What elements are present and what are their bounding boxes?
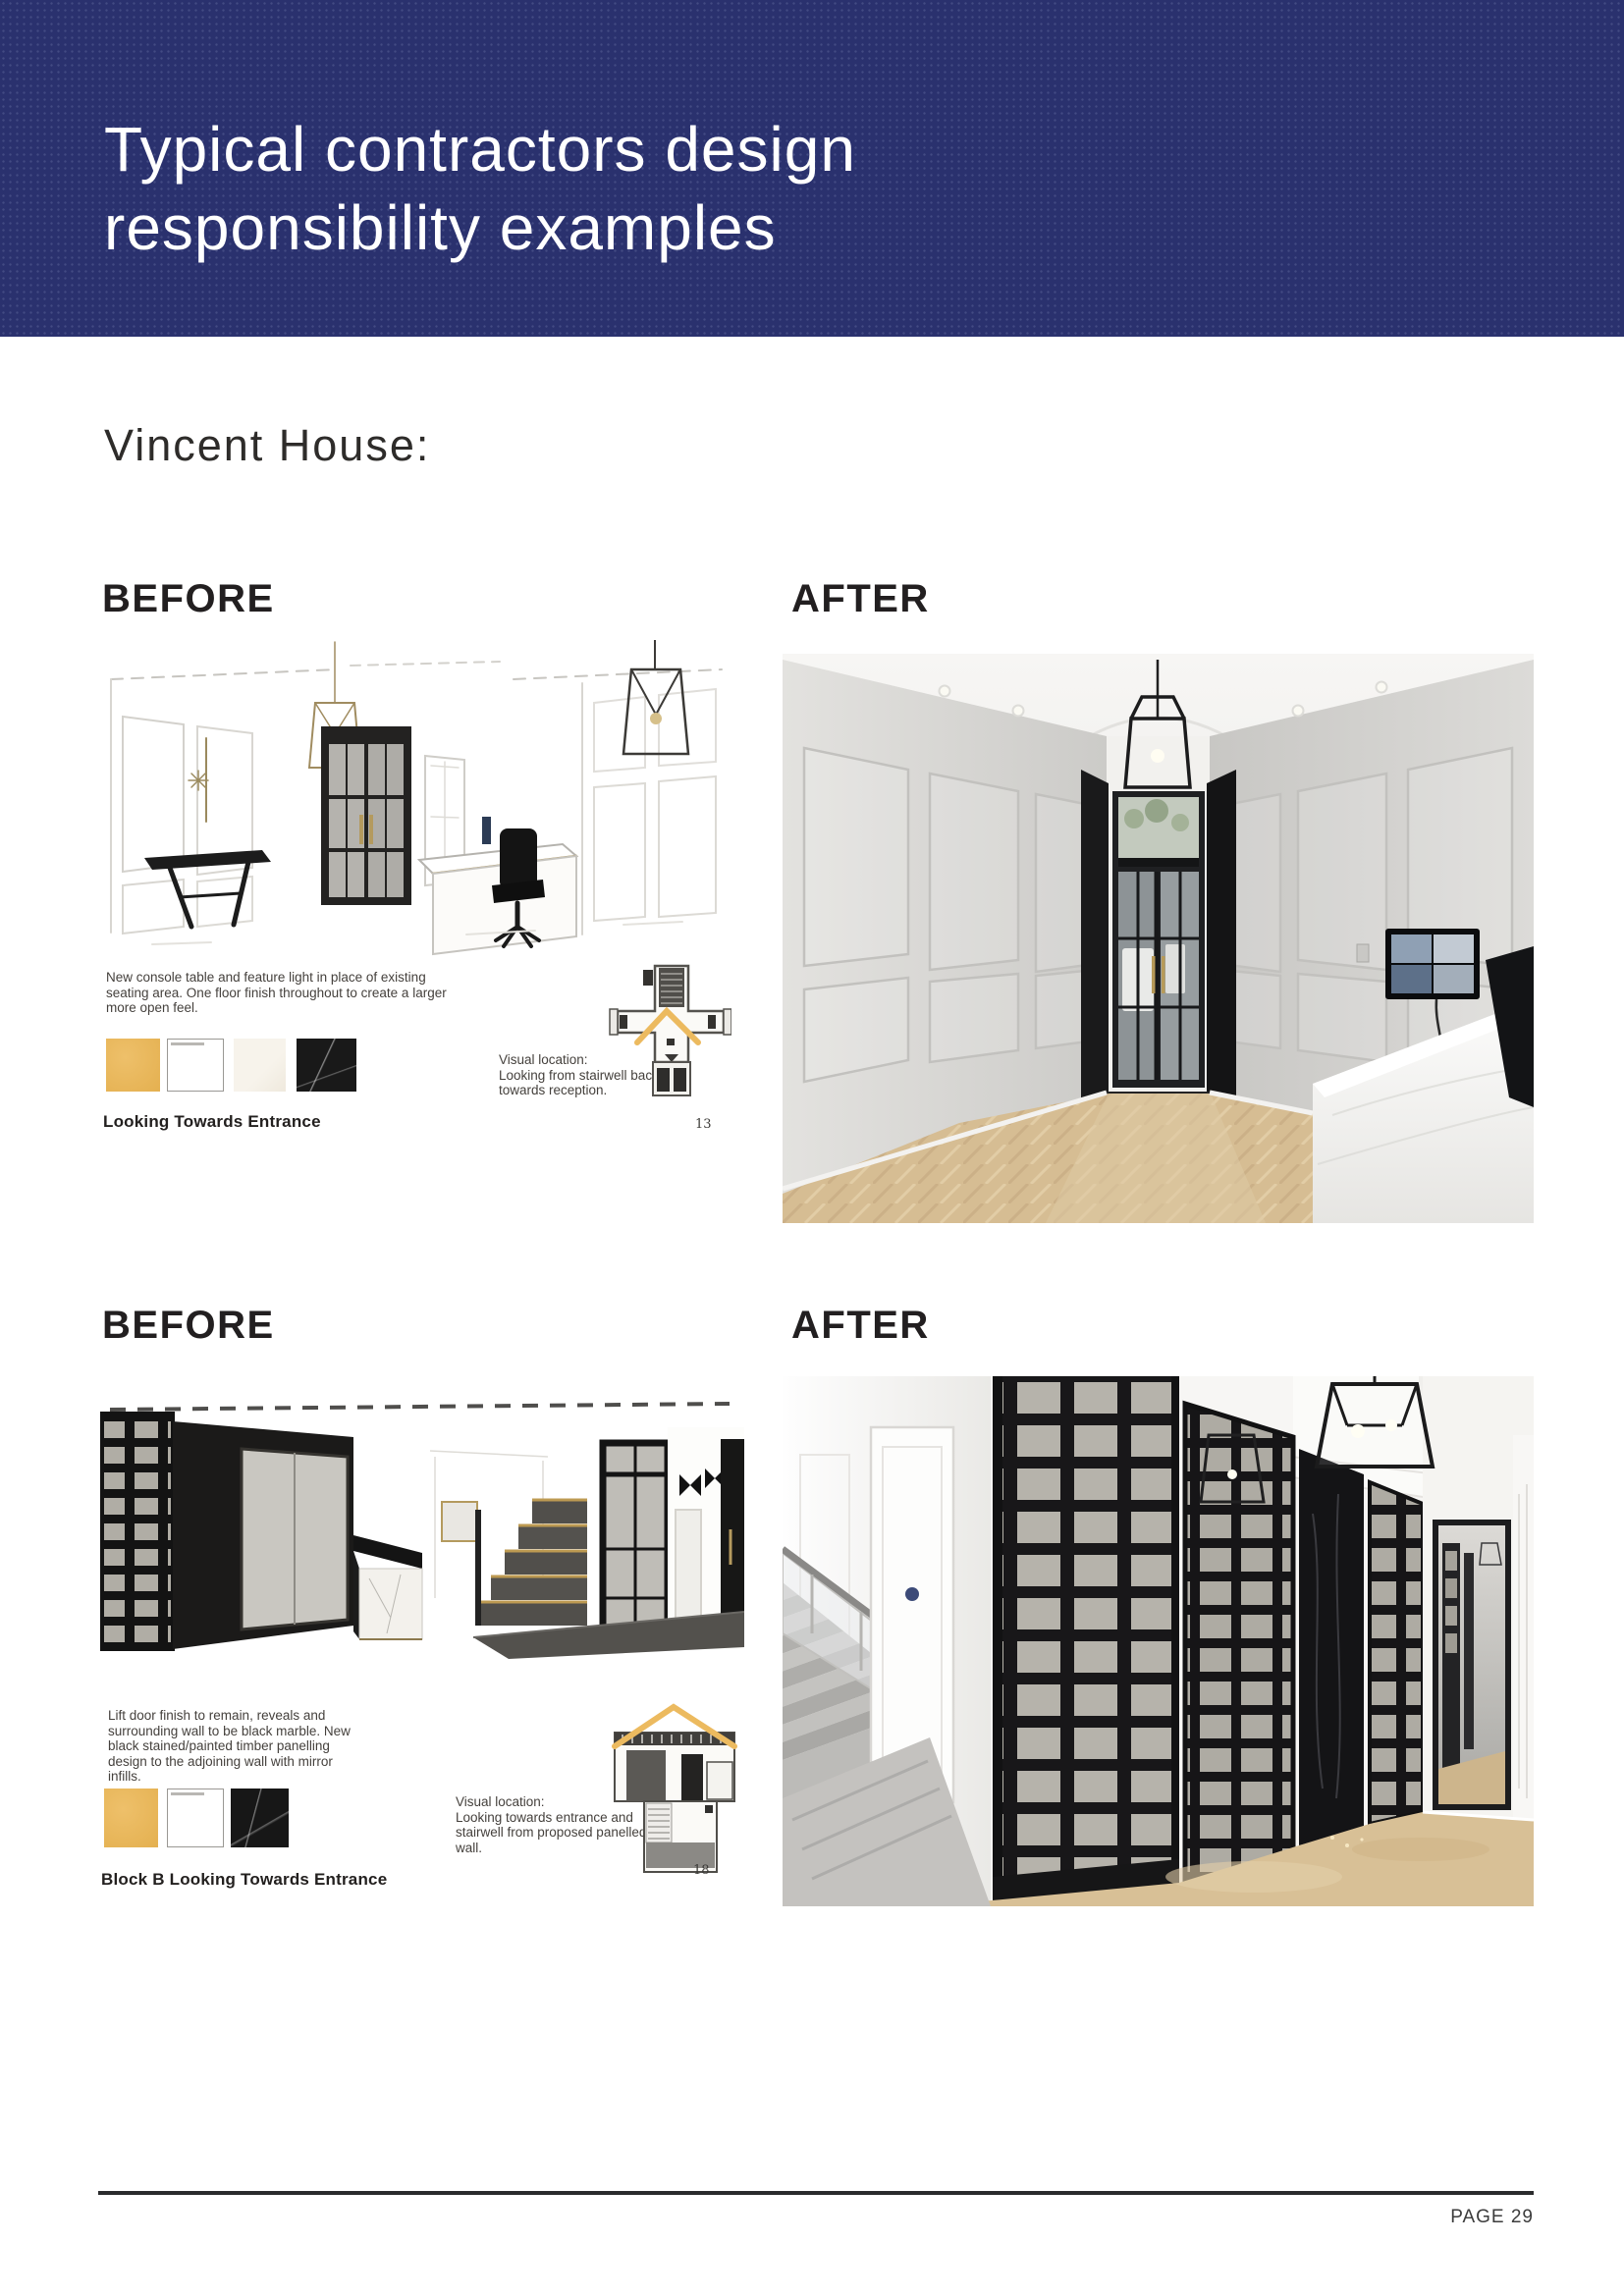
before-sketch-reception (93, 640, 736, 959)
floor-plan-thumbnail-row1 (604, 960, 731, 1102)
source-page-number-row2: 18 (693, 1863, 710, 1878)
view-label-row1: Looking Towards Entrance (103, 1112, 321, 1132)
page-number-label: PAGE 29 (1450, 2207, 1534, 2228)
material-swatch-black-marble (297, 1039, 356, 1092)
visual-location-title: Visual location: (499, 1052, 588, 1067)
before-caption-row1: New console table and feature light in p… (106, 970, 452, 1016)
material-swatch-gold (104, 1789, 158, 1847)
footer-rule (98, 2191, 1534, 2195)
header-banner: Typical contractors design responsibilit… (0, 0, 1624, 337)
material-swatch-black-marble (231, 1789, 289, 1847)
document-page: Typical contractors design responsibilit… (0, 0, 1624, 2296)
material-swatch-white-panel (167, 1789, 224, 1847)
swatch-spec-text (171, 1792, 204, 1795)
page-title-line2: responsibility examples (104, 192, 777, 263)
source-page-number-row1: 13 (695, 1117, 712, 1132)
before-caption-row2: Lift door finish to remain, reveals and … (108, 1708, 352, 1785)
after-photo-reception-hallway (783, 654, 1534, 1223)
page-title: Typical contractors design responsibilit… (104, 110, 856, 267)
after-label-row1: AFTER (791, 577, 930, 621)
section-heading: Vincent House: (104, 420, 430, 471)
material-swatch-gold (106, 1039, 160, 1092)
after-label-row2: AFTER (791, 1304, 930, 1348)
material-swatch-light-marble (234, 1039, 286, 1092)
page-title-line1: Typical contractors design (104, 114, 856, 185)
before-label-row1: BEFORE (102, 577, 275, 621)
before-sketch-lift-lobby (96, 1392, 744, 1662)
before-label-row2: BEFORE (102, 1304, 275, 1348)
swatch-spec-text (171, 1042, 204, 1045)
floor-plan-thumbnail-row2 (611, 1693, 740, 1880)
material-swatch-white-panel (167, 1039, 224, 1092)
after-photo-panelled-corridor (783, 1376, 1534, 1906)
view-label-row2: Block B Looking Towards Entrance (101, 1870, 387, 1890)
visual-location-title: Visual location: (456, 1794, 545, 1809)
